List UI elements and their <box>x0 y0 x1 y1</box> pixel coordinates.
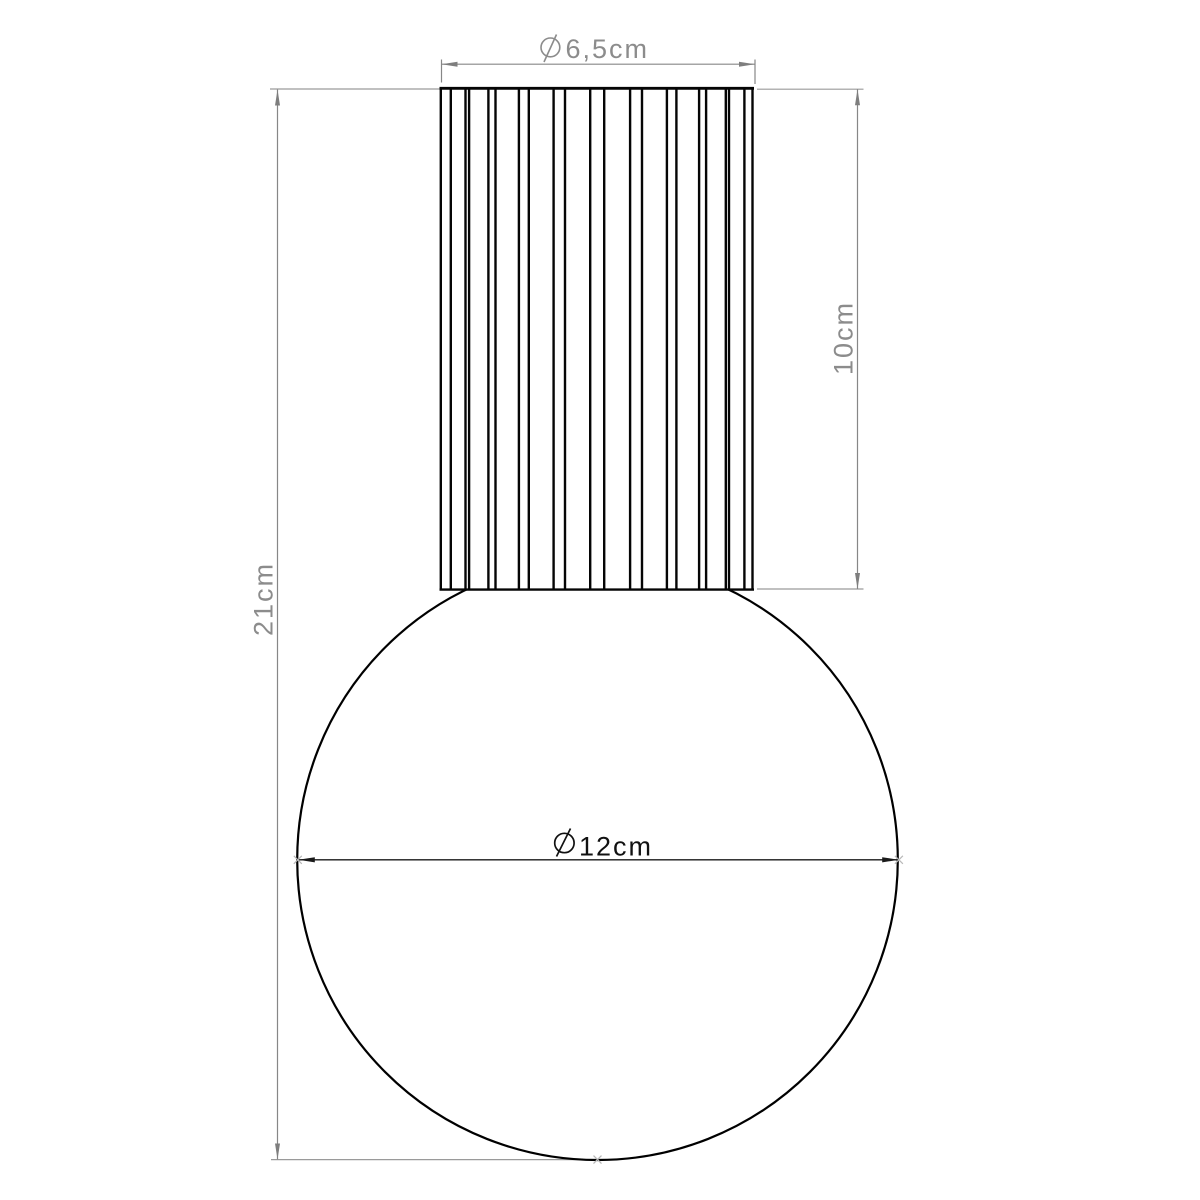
svg-text:6,5cm: 6,5cm <box>566 34 650 64</box>
svg-text:12cm: 12cm <box>579 832 653 862</box>
svg-text:21cm: 21cm <box>249 562 279 636</box>
svg-text:10cm: 10cm <box>829 301 859 375</box>
